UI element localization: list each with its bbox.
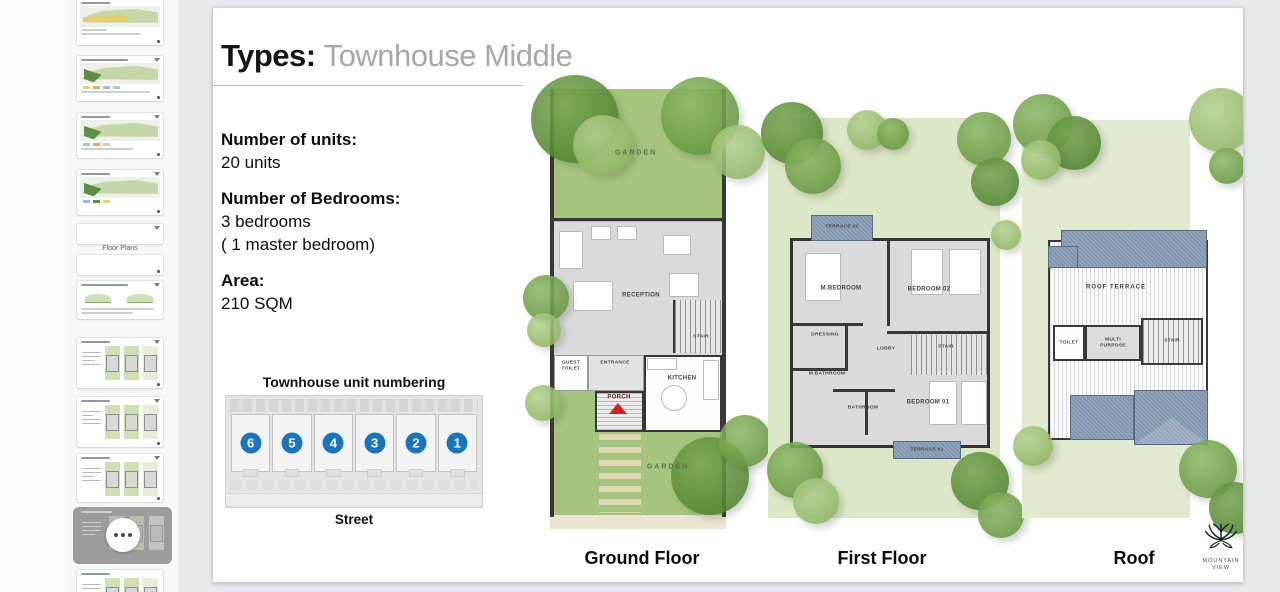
thumbnail-caption-bar bbox=[81, 308, 154, 310]
download-icon[interactable] bbox=[154, 399, 160, 403]
slide-thumbnail-6[interactable] bbox=[77, 255, 163, 275]
unit-house: 5 bbox=[272, 414, 311, 472]
tree bbox=[877, 118, 909, 150]
download-icon[interactable] bbox=[154, 172, 160, 176]
slide-thumbnail-10[interactable] bbox=[77, 454, 163, 502]
masterplan-mini-image bbox=[80, 177, 160, 198]
first-floor-plan: TERRACE 02 M.BEDROOM BEDROOM 02 DRESSING… bbox=[763, 100, 1015, 545]
room-label: BEDROOM 02 bbox=[908, 287, 951, 294]
bedrooms-value: 3 bedrooms bbox=[221, 210, 400, 233]
thumbnail-marker-icon bbox=[157, 40, 160, 43]
tree bbox=[525, 385, 561, 421]
roof-label: Roof bbox=[1114, 548, 1155, 569]
thumbnail-caption-bar bbox=[81, 148, 133, 150]
unit-house: 6 bbox=[231, 414, 270, 472]
unit-number-badge: 2 bbox=[405, 433, 426, 454]
types-mini-image bbox=[79, 577, 161, 592]
tree bbox=[1209, 148, 1243, 184]
unit-number-badge: 5 bbox=[281, 433, 302, 454]
unit-info-block: Number of units: 20 units Number of Bedr… bbox=[221, 128, 400, 328]
thumbnail-caption-bar bbox=[81, 29, 107, 31]
slide-canvas: Types:Townhouse Middle Number of units: … bbox=[213, 8, 1243, 582]
roof-slab-top-step bbox=[1048, 246, 1078, 268]
title-prefix: Types: bbox=[221, 38, 316, 73]
furniture bbox=[617, 226, 637, 240]
thumbnail-marker-icon bbox=[157, 497, 160, 500]
siteplan-back-row bbox=[230, 399, 478, 412]
slide-thumbnail-4[interactable] bbox=[77, 170, 163, 215]
numbering-title: Townhouse unit numbering bbox=[225, 374, 483, 390]
title-value: Townhouse Middle bbox=[324, 38, 573, 73]
room-label: ROOF TERRACE bbox=[1086, 285, 1146, 292]
room-label: TOILET bbox=[1060, 340, 1079, 346]
thumbnail-caption-bar bbox=[81, 91, 150, 93]
thumbnail-marker-icon bbox=[157, 96, 160, 99]
wall bbox=[554, 218, 722, 221]
tree bbox=[1013, 426, 1053, 466]
elevation-mini-image bbox=[77, 288, 163, 306]
room-label: TERRACE 01 bbox=[910, 447, 943, 453]
thumbnail-marker-icon bbox=[157, 383, 160, 386]
slide-thumbnail-2[interactable] bbox=[77, 56, 163, 101]
thumbnail-title-bar bbox=[81, 457, 110, 459]
thumbnail-legend bbox=[83, 86, 159, 89]
room-label: LOBBY bbox=[877, 346, 895, 352]
room-label: ENTRANCE bbox=[600, 360, 629, 366]
slide-thumbnail-8[interactable] bbox=[77, 338, 163, 388]
tree bbox=[971, 158, 1019, 206]
thumbnail-marker-icon bbox=[157, 270, 160, 273]
tree bbox=[785, 138, 841, 194]
tree bbox=[957, 112, 1011, 166]
dot-icon bbox=[114, 533, 118, 537]
ground-floor-label: Ground Floor bbox=[585, 548, 700, 569]
masterplan-mini-image bbox=[80, 63, 160, 84]
thumbnail-title-bar bbox=[81, 116, 110, 118]
roof-slab-bottom-right bbox=[1134, 390, 1208, 445]
thumbnail-title-bar bbox=[81, 341, 110, 343]
download-icon[interactable] bbox=[154, 283, 160, 287]
thumbnail-marker-icon bbox=[157, 210, 160, 213]
tree bbox=[573, 115, 633, 175]
bedrooms-note: ( 1 master bedroom) bbox=[221, 233, 400, 256]
thumbnail-title-bar bbox=[81, 59, 128, 61]
palm-tree-icon bbox=[1203, 520, 1239, 552]
room-label: PORCH bbox=[607, 395, 630, 402]
download-icon[interactable] bbox=[154, 58, 160, 62]
masterplan-mini-image bbox=[80, 6, 160, 27]
first-floor-label: First Floor bbox=[838, 548, 927, 569]
unit-number-badge: 6 bbox=[240, 433, 261, 454]
unit-house: 1 bbox=[438, 414, 477, 472]
room-label: STAIR bbox=[1164, 338, 1180, 344]
room-label: BEDROOM 01 bbox=[907, 400, 950, 407]
room-label: MULTI PURPOSE bbox=[1100, 337, 1126, 348]
unit-number-badge: 4 bbox=[323, 433, 344, 454]
slide-thumbnail-12[interactable] bbox=[77, 570, 163, 592]
unit-numbering-diagram: Townhouse unit numbering 6 5 4 3 2 1 Str… bbox=[225, 374, 483, 527]
thumbnail-title-bar bbox=[81, 2, 110, 4]
unit-house: 4 bbox=[314, 414, 353, 472]
furniture bbox=[669, 273, 699, 297]
roof-plan: ROOF TERRACE TOILET MULTI PURPOSE STAIR bbox=[1013, 88, 1243, 543]
area-label: Area: bbox=[221, 269, 400, 292]
slide-thumbnail-3[interactable] bbox=[77, 113, 163, 158]
units-value: 20 units bbox=[221, 151, 400, 174]
unit-numbering-siteplan: 6 5 4 3 2 1 bbox=[225, 395, 483, 508]
tree bbox=[1189, 88, 1243, 152]
sidebar-section-label: Floor Plans bbox=[70, 245, 170, 252]
thumbnail-marker-icon bbox=[157, 442, 160, 445]
room-label: KITCHEN bbox=[668, 376, 697, 383]
area-value: 210 SQM bbox=[221, 292, 400, 315]
tree bbox=[711, 125, 765, 179]
slide-thumbnail-1[interactable] bbox=[77, 0, 163, 45]
garden-path bbox=[599, 434, 641, 513]
thumbnail-legend bbox=[83, 143, 159, 146]
tree bbox=[793, 478, 839, 524]
slide-thumbnail-9[interactable] bbox=[77, 397, 163, 447]
furniture bbox=[573, 281, 613, 311]
roof-hip bbox=[1135, 418, 1209, 444]
thumbnail-caption-bar bbox=[81, 33, 141, 35]
sidebar-left-strip bbox=[0, 0, 66, 592]
unit-house: 2 bbox=[396, 414, 435, 472]
bedrooms-label: Number of Bedrooms: bbox=[221, 187, 400, 210]
masterplan-mini-image bbox=[80, 120, 160, 141]
room-label: BATHROOM bbox=[848, 405, 879, 411]
room-label: GARDEN bbox=[647, 464, 689, 471]
street-label: Street bbox=[225, 512, 483, 527]
roof-slab-top bbox=[1061, 230, 1207, 268]
siteplan-street-strip bbox=[226, 493, 482, 505]
room-label: RECEPTION bbox=[622, 293, 660, 300]
units-label: Number of units: bbox=[221, 128, 400, 151]
room-label: STAIR bbox=[938, 344, 954, 350]
thumbnail-title-bar bbox=[81, 573, 110, 575]
thumbnail-sidebar[interactable]: Floor Plans bbox=[0, 0, 180, 592]
download-icon[interactable] bbox=[154, 115, 160, 119]
roof-slab-bottom-left bbox=[1070, 395, 1134, 440]
thumbnail-title-bar bbox=[81, 173, 110, 175]
mountain-view-logo: MOUNTAIN VIEW bbox=[1195, 520, 1243, 572]
slide-thumbnail-7[interactable] bbox=[77, 281, 163, 319]
dot-icon bbox=[121, 533, 125, 537]
furniture bbox=[661, 385, 687, 411]
thumbnail-title-bar bbox=[81, 400, 110, 402]
types-mini-image bbox=[79, 404, 161, 442]
thumbnail-legend bbox=[83, 200, 159, 203]
room-label: GARDEN bbox=[615, 150, 657, 157]
stair-area bbox=[673, 300, 722, 353]
download-icon[interactable] bbox=[154, 340, 160, 344]
furniture bbox=[591, 226, 611, 240]
furniture bbox=[559, 231, 583, 269]
furniture bbox=[663, 235, 691, 255]
tree bbox=[1021, 140, 1061, 180]
slide-thumbnail-11-selected[interactable] bbox=[73, 507, 172, 564]
ground-floor-plan: GARDEN RECEPTION STAIR GUEST TOILET ENTR… bbox=[543, 85, 773, 540]
tree bbox=[527, 313, 561, 347]
logo-line2: VIEW bbox=[1195, 565, 1243, 572]
thumbnail-menu-button[interactable] bbox=[106, 518, 140, 552]
room-label: DRESSING bbox=[811, 332, 839, 338]
room-label: M.BATHROOM bbox=[809, 371, 846, 377]
slide-thumbnail-5[interactable] bbox=[77, 224, 163, 244]
unit-number-badge: 1 bbox=[447, 433, 468, 454]
download-icon[interactable] bbox=[154, 226, 160, 230]
thumbnail-marker-icon bbox=[157, 153, 160, 156]
logo-line1: MOUNTAIN bbox=[1195, 558, 1243, 565]
types-mini-image bbox=[79, 345, 161, 383]
furniture bbox=[647, 358, 677, 370]
room-label: M.BEDROOM bbox=[821, 286, 862, 293]
title-underline bbox=[213, 85, 523, 86]
unit-number-badge: 3 bbox=[364, 433, 385, 454]
room-label: GUEST TOILET bbox=[560, 360, 581, 371]
types-mini-image bbox=[79, 461, 161, 499]
download-icon[interactable] bbox=[154, 456, 160, 460]
unit-house: 3 bbox=[355, 414, 394, 472]
dot-icon bbox=[128, 533, 132, 537]
thumbnail-title-bar bbox=[81, 284, 128, 286]
porch-arrow-icon bbox=[609, 403, 627, 414]
room-label: STAIR bbox=[693, 334, 709, 340]
furniture bbox=[703, 360, 719, 400]
thumbnail-caption-bar bbox=[81, 312, 133, 314]
room-label: TERRACE 02 bbox=[825, 224, 858, 230]
siteplan-front-row bbox=[230, 480, 478, 490]
sidewalk-strip bbox=[550, 515, 726, 529]
floor-outline bbox=[790, 238, 990, 448]
page-title: Types:Townhouse Middle bbox=[221, 38, 572, 74]
